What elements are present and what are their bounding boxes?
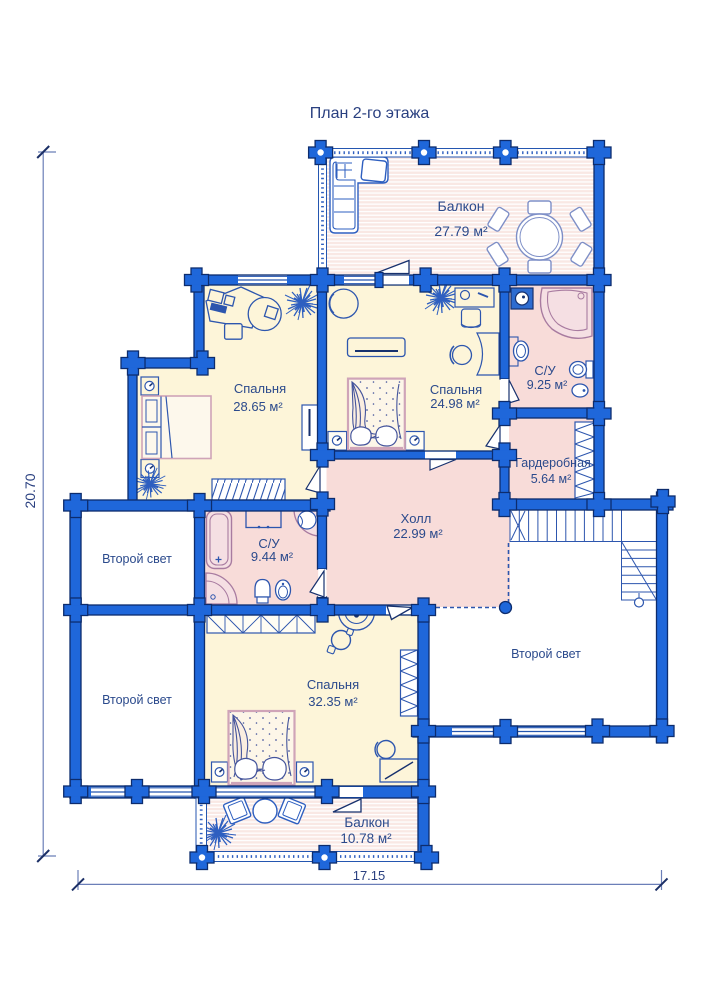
svg-text:С/У: С/У [534,363,556,378]
svg-text:Гардеробная: Гардеробная [515,456,591,470]
svg-text:27.79 м²: 27.79 м² [434,223,488,239]
svg-text:Холл: Холл [401,511,432,526]
svg-text:28.65 м²: 28.65 м² [233,399,283,414]
svg-text:24.98 м²: 24.98 м² [430,396,480,411]
svg-text:20.70: 20.70 [22,473,38,508]
svg-text:Второй свет: Второй свет [511,647,581,661]
svg-text:9.25 м²: 9.25 м² [527,378,568,392]
svg-text:22.99 м²: 22.99 м² [393,526,443,541]
svg-text:Второй свет: Второй свет [102,552,172,566]
svg-text:Спальня: Спальня [430,382,482,397]
svg-text:План 2-го этажа: План 2-го этажа [310,105,430,122]
svg-text:32.35 м²: 32.35 м² [308,694,358,709]
svg-text:Спальня: Спальня [234,381,286,396]
svg-text:Балкон: Балкон [344,815,389,830]
svg-text:9.44 м²: 9.44 м² [251,549,294,564]
svg-text:Балкон: Балкон [438,198,485,214]
svg-text:Второй свет: Второй свет [102,693,172,707]
svg-text:17.15: 17.15 [353,868,386,883]
svg-text:10.78 м²: 10.78 м² [340,831,392,846]
svg-text:5.64 м²: 5.64 м² [531,472,572,486]
svg-text:Спальня: Спальня [307,677,359,692]
